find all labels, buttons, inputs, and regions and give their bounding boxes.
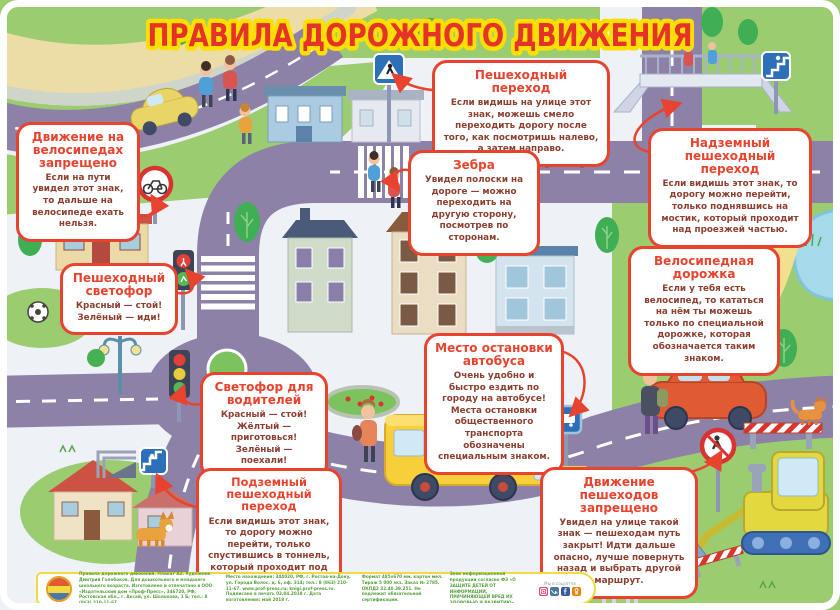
imprint-address-text: Место нахождения: 344020, РФ, г. Ростов-… xyxy=(226,574,355,603)
callout-title: Зебра xyxy=(419,159,529,172)
poster-title: ПРАВИЛА ДОРОЖНОГО ДВИЖЕНИЯ xyxy=(0,4,840,66)
callout-body: Очень удобно и быстро ездить по городу н… xyxy=(435,371,553,464)
soccer-ball xyxy=(28,302,48,322)
building-top-blue xyxy=(264,86,346,142)
traffic-rules-poster: ПРАВИЛА ДОРОЖНОГО ДВИЖЕНИЯ Движение на в… xyxy=(0,0,840,610)
callout-title: Движение на велосипедах запрещено xyxy=(27,131,129,170)
callout-title: Надземный пешеходный переход xyxy=(659,137,801,176)
callout-bus-stop: Место остановки автобуса Очень удобно и … xyxy=(424,333,564,475)
callout-title: Движение пешеходов запрещено xyxy=(551,476,687,515)
callout-overpass: Надземный пешеходный переход Если видишь… xyxy=(648,128,812,248)
building-top-gray xyxy=(348,90,424,142)
imprint-bar: Правила дорожного движения. Плакат А2. Х… xyxy=(36,572,596,605)
social-label: Мы в соцсетях xyxy=(534,581,586,586)
instagram-icon[interactable] xyxy=(539,587,548,596)
facebook-icon[interactable] xyxy=(561,587,570,596)
vk-icon[interactable] xyxy=(550,587,559,596)
callout-body: Если видишь на улице этот знак, можешь с… xyxy=(443,98,599,156)
callout-title: Пешеходный переход xyxy=(465,69,577,95)
callout-body: Если видишь этот знак, то дорогу можно п… xyxy=(659,179,801,237)
building-blue xyxy=(492,246,578,334)
social-block: Мы в соцсетях xyxy=(534,581,586,596)
callout-title: Подземный пешеходный переход xyxy=(207,477,331,514)
callout-body: Увидел полоски на дороге — можно переход… xyxy=(419,175,529,245)
callout-no-bikes: Движение на велосипедах запрещено Если н… xyxy=(16,122,140,242)
callout-ped-light: Пешеходный светофор Красный — стой! Зелё… xyxy=(60,263,178,335)
poster-title-text: ПРАВИЛА ДОРОЖНОГО ДВИЖЕНИЯ xyxy=(148,18,693,54)
callout-body: Если у тебя есть велосипед, то кататься … xyxy=(639,284,769,365)
callout-title: Велосипедная дорожка xyxy=(639,255,769,281)
callout-zebra: Зебра Увидел полоски на дороге — можно п… xyxy=(408,150,540,256)
publisher-logo xyxy=(46,576,72,602)
callout-title: Пешеходный светофор xyxy=(71,272,167,298)
callout-driver-light: Светофор для водителей Красный — стой! Ж… xyxy=(200,372,328,479)
imprint-publisher-text: Правила дорожного движения. Плакат А2. Х… xyxy=(79,571,219,606)
callout-body: Красный — стой! Зелёный — иди! xyxy=(71,301,167,324)
callout-body: Красный — стой! Жёлтый — приготовься! Зе… xyxy=(211,410,317,468)
callout-body: Если на пути увидел этот знак, то дальше… xyxy=(27,173,129,231)
building-green xyxy=(282,208,358,332)
odnoklassniki-icon[interactable] xyxy=(572,587,581,596)
callout-bike-path: Велосипедная дорожка Если у тебя есть ве… xyxy=(628,246,780,376)
callout-title: Светофор для водителей xyxy=(211,381,317,407)
imprint-print-text: Формат 485х670 мм, картон мел. Тираж 5 0… xyxy=(362,574,443,603)
imprint-law-text: Знак информационной продукции согласно Ф… xyxy=(450,571,527,606)
callout-title: Место остановки автобуса xyxy=(435,342,553,368)
